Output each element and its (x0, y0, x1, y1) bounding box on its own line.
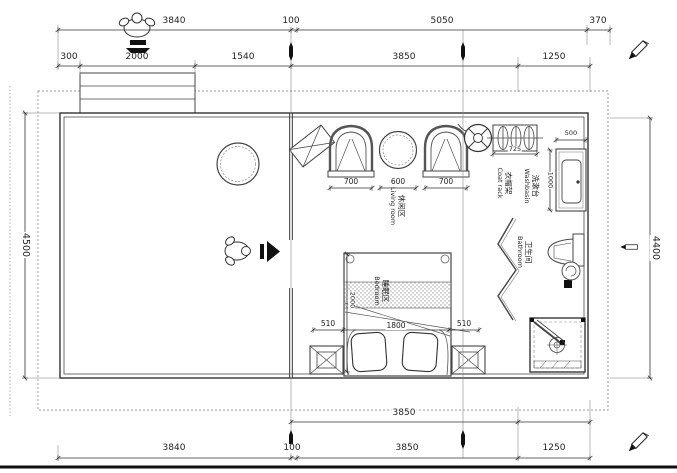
dim-top-100: 100 (281, 17, 300, 26)
dim-bed-1800: 1800 (385, 322, 406, 330)
plan-linework (0, 0, 677, 473)
dim-bottom2-1250: 1250 (542, 444, 567, 453)
dim-right-4400: 4400 (650, 235, 660, 261)
dim-seat-right-700: 700 (438, 178, 454, 186)
terrace-table (217, 143, 259, 185)
dim-table-600: 600 (390, 178, 406, 186)
dim-top2-300: 300 (59, 53, 78, 62)
dim-washbasin-1000: 1000 (547, 172, 554, 189)
dim-left-4500: 4500 (20, 232, 30, 258)
dim-top2-2000: 2000 (125, 53, 150, 62)
label-living-room: 休闲区 Living room (389, 187, 405, 225)
dim-bed-depth-2000: 2000 (349, 292, 356, 309)
dim-seat-left-700: 700 (343, 178, 359, 186)
label-coat-rack: 衣帽架 Coat rack (496, 167, 512, 198)
living-table (380, 132, 417, 169)
entry-stairs (80, 73, 195, 113)
label-bedroom: 睡眠区 Bedroom (373, 276, 389, 305)
nightstand-right (452, 346, 485, 374)
dim-bottom1-3850: 3850 (392, 409, 417, 418)
pipe-stub (564, 280, 572, 288)
label-bathroom: 卫生间 Bathroom (516, 236, 532, 268)
pillow-right (402, 332, 439, 372)
floor-plan-canvas: 3840 100 5050 370 300 2000 1540 3850 125… (0, 0, 677, 473)
dim-top-3840: 3840 (162, 17, 187, 26)
dim-coat-rack-725: 725 (508, 146, 522, 153)
dim-top-5050: 5050 (430, 17, 455, 26)
dim-top-370: 370 (588, 17, 607, 26)
pillow-left (351, 332, 388, 372)
shower-cabin (530, 318, 585, 372)
washbasin-counter (556, 149, 586, 211)
pen-icon-top-right (627, 39, 649, 61)
dim-bed-right-510: 510 (456, 320, 472, 328)
pen-icon-bottom-right (627, 431, 649, 453)
person-entering-icon (118, 13, 156, 37)
dim-top2-1540: 1540 (231, 53, 256, 62)
dim-bottom2-3840: 3840 (162, 444, 187, 453)
floor-drain (562, 262, 580, 280)
dim-bed-left-510: 510 (320, 320, 336, 328)
dim-top2-3850: 3850 (392, 53, 417, 62)
dim-washbasin-500: 500 (564, 130, 578, 137)
dim-bottom2-100: 100 (282, 444, 301, 453)
dim-top2-1250: 1250 (542, 53, 567, 62)
nightstand-left (310, 346, 343, 374)
label-washbasin: 洗漱台 Washbasin (523, 169, 539, 204)
dim-bottom2-3850: 3850 (395, 444, 420, 453)
bed (344, 253, 470, 376)
pen-icon-right (620, 245, 637, 250)
